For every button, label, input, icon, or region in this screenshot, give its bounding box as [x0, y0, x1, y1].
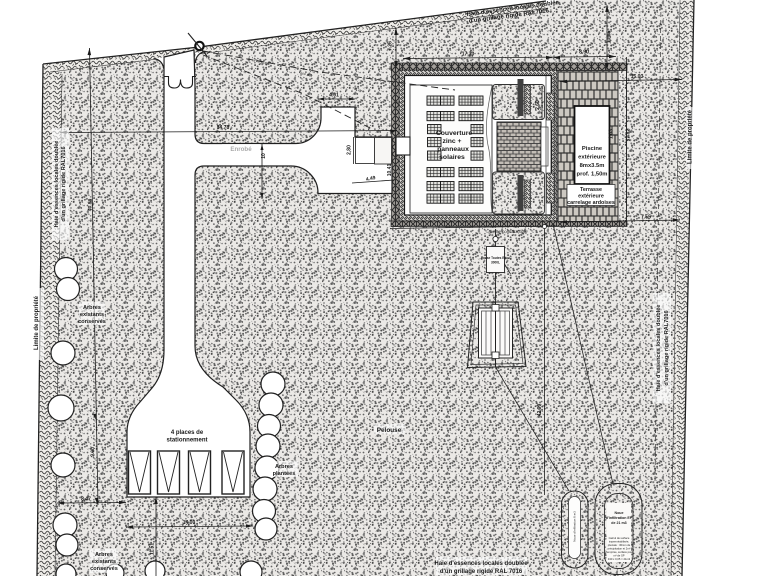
svg-text:7.55: 7.55: [641, 215, 651, 221]
svg-text:extérieure: extérieure: [578, 155, 606, 161]
svg-text:extérieure: extérieure: [578, 194, 604, 200]
svg-text:14.00: 14.00: [183, 520, 196, 526]
svg-text:34.78: 34.78: [217, 125, 230, 131]
svg-text:Arbres: Arbres: [95, 552, 113, 558]
svg-text:précipitation et 2m²: précipitation et 2m²: [608, 547, 631, 551]
svg-text:imperméabilisée,: imperméabilisée,: [609, 540, 630, 544]
svg-text:conservés: conservés: [90, 566, 118, 572]
svg-text:8mx3.5m: 8mx3.5m: [580, 163, 605, 169]
svg-text:Haie d'essences locales doublé: Haie d'essences locales doublée: [434, 561, 528, 567]
svg-text:plantées: plantées: [273, 471, 296, 477]
svg-text:Couverture: Couverture: [436, 130, 472, 137]
svg-text:2,60: 2,60: [535, 100, 541, 110]
svg-text:Fosse Toutes Eaux: Fosse Toutes Eaux: [481, 256, 510, 260]
svg-text:Calcul de surface: Calcul de surface: [609, 536, 630, 540]
svg-text:zinc +: zinc +: [442, 138, 461, 145]
svg-text:10.06: 10.06: [607, 31, 613, 44]
svg-text:Terrasse: Terrasse: [580, 187, 602, 193]
svg-text:2,80: 2,80: [347, 145, 353, 155]
svg-text:d'un grillage rigide RAL7016: d'un grillage rigide RAL7016: [664, 310, 670, 385]
svg-text:8.47: 8.47: [81, 497, 91, 503]
svg-text:d'un grillage rigide RAL7016: d'un grillage rigide RAL7016: [61, 146, 67, 221]
svg-text:11.51: 11.51: [150, 543, 156, 555]
svg-text:7.26: 7.26: [388, 41, 394, 51]
svg-text:15.03: 15.03: [631, 74, 644, 80]
svg-text:carrelage ardoises: carrelage ardoises: [567, 200, 615, 206]
svg-text:9.90: 9.90: [90, 447, 96, 457]
svg-text:Limite constructible: Limite constructible: [488, 229, 528, 235]
svg-text:d'infiltration EP: d'infiltration EP: [606, 516, 633, 520]
svg-text:prof. 1,50m: prof. 1,50m: [577, 172, 608, 178]
svg-text:Noue d'infiltration 8 m3: Noue d'infiltration 8 m3: [573, 511, 577, 542]
svg-text:17.82: 17.82: [626, 129, 632, 142]
svg-text:pluviale : 30mm de: pluviale : 30mm de: [608, 543, 631, 547]
svg-text:430 x 0,05 = 21m3: 430 x 0,05 = 21m3: [608, 557, 631, 561]
svg-text:4.01: 4.01: [329, 93, 339, 99]
svg-text:Arbres: Arbres: [275, 464, 293, 470]
svg-text:8.90: 8.90: [579, 50, 589, 56]
svg-text:10: 10: [261, 153, 267, 159]
svg-text:Haie d'essences locales doublé: Haie d'essences locales doublée: [656, 305, 662, 392]
svg-text:Limite de propriété: Limite de propriété: [34, 295, 40, 350]
svg-text:1.03: 1.03: [609, 129, 615, 139]
svg-text:existants: existants: [80, 312, 104, 318]
svg-text:40.88: 40.88: [87, 198, 93, 211]
svg-text:panneaux: panneaux: [437, 146, 469, 153]
svg-text:42.99: 42.99: [537, 404, 543, 417]
svg-text:3000L: 3000L: [491, 261, 500, 265]
svg-text:solaires: solaires: [439, 154, 465, 161]
svg-text:4 places de: 4 places de: [171, 430, 204, 436]
svg-text:Limite de propriété: Limite de propriété: [688, 109, 694, 164]
svg-text:d'un grillage rigide RAL 7016: d'un grillage rigide RAL 7016: [440, 569, 523, 575]
svg-text:Arbres: Arbres: [83, 305, 101, 311]
svg-text:10.41: 10.41: [387, 164, 393, 177]
svg-text:existants: existants: [92, 559, 116, 565]
svg-text:d'emprise, surface pour: d'emprise, surface pour: [605, 550, 633, 554]
svg-text:Pelouse: Pelouse: [377, 427, 402, 434]
svg-text:Noue: Noue: [615, 511, 624, 515]
svg-text:m² de SP: m² de SP: [613, 554, 624, 558]
svg-text:conservés: conservés: [78, 319, 106, 325]
svg-text:17.30: 17.30: [462, 52, 475, 58]
svg-text:Piscine: Piscine: [582, 146, 603, 152]
svg-text:de 21 m3: de 21 m3: [611, 521, 626, 525]
svg-text:stationnement: stationnement: [166, 438, 207, 444]
svg-text:Haie d'essences locales doublé: Haie d'essences locales doublée: [54, 141, 60, 228]
